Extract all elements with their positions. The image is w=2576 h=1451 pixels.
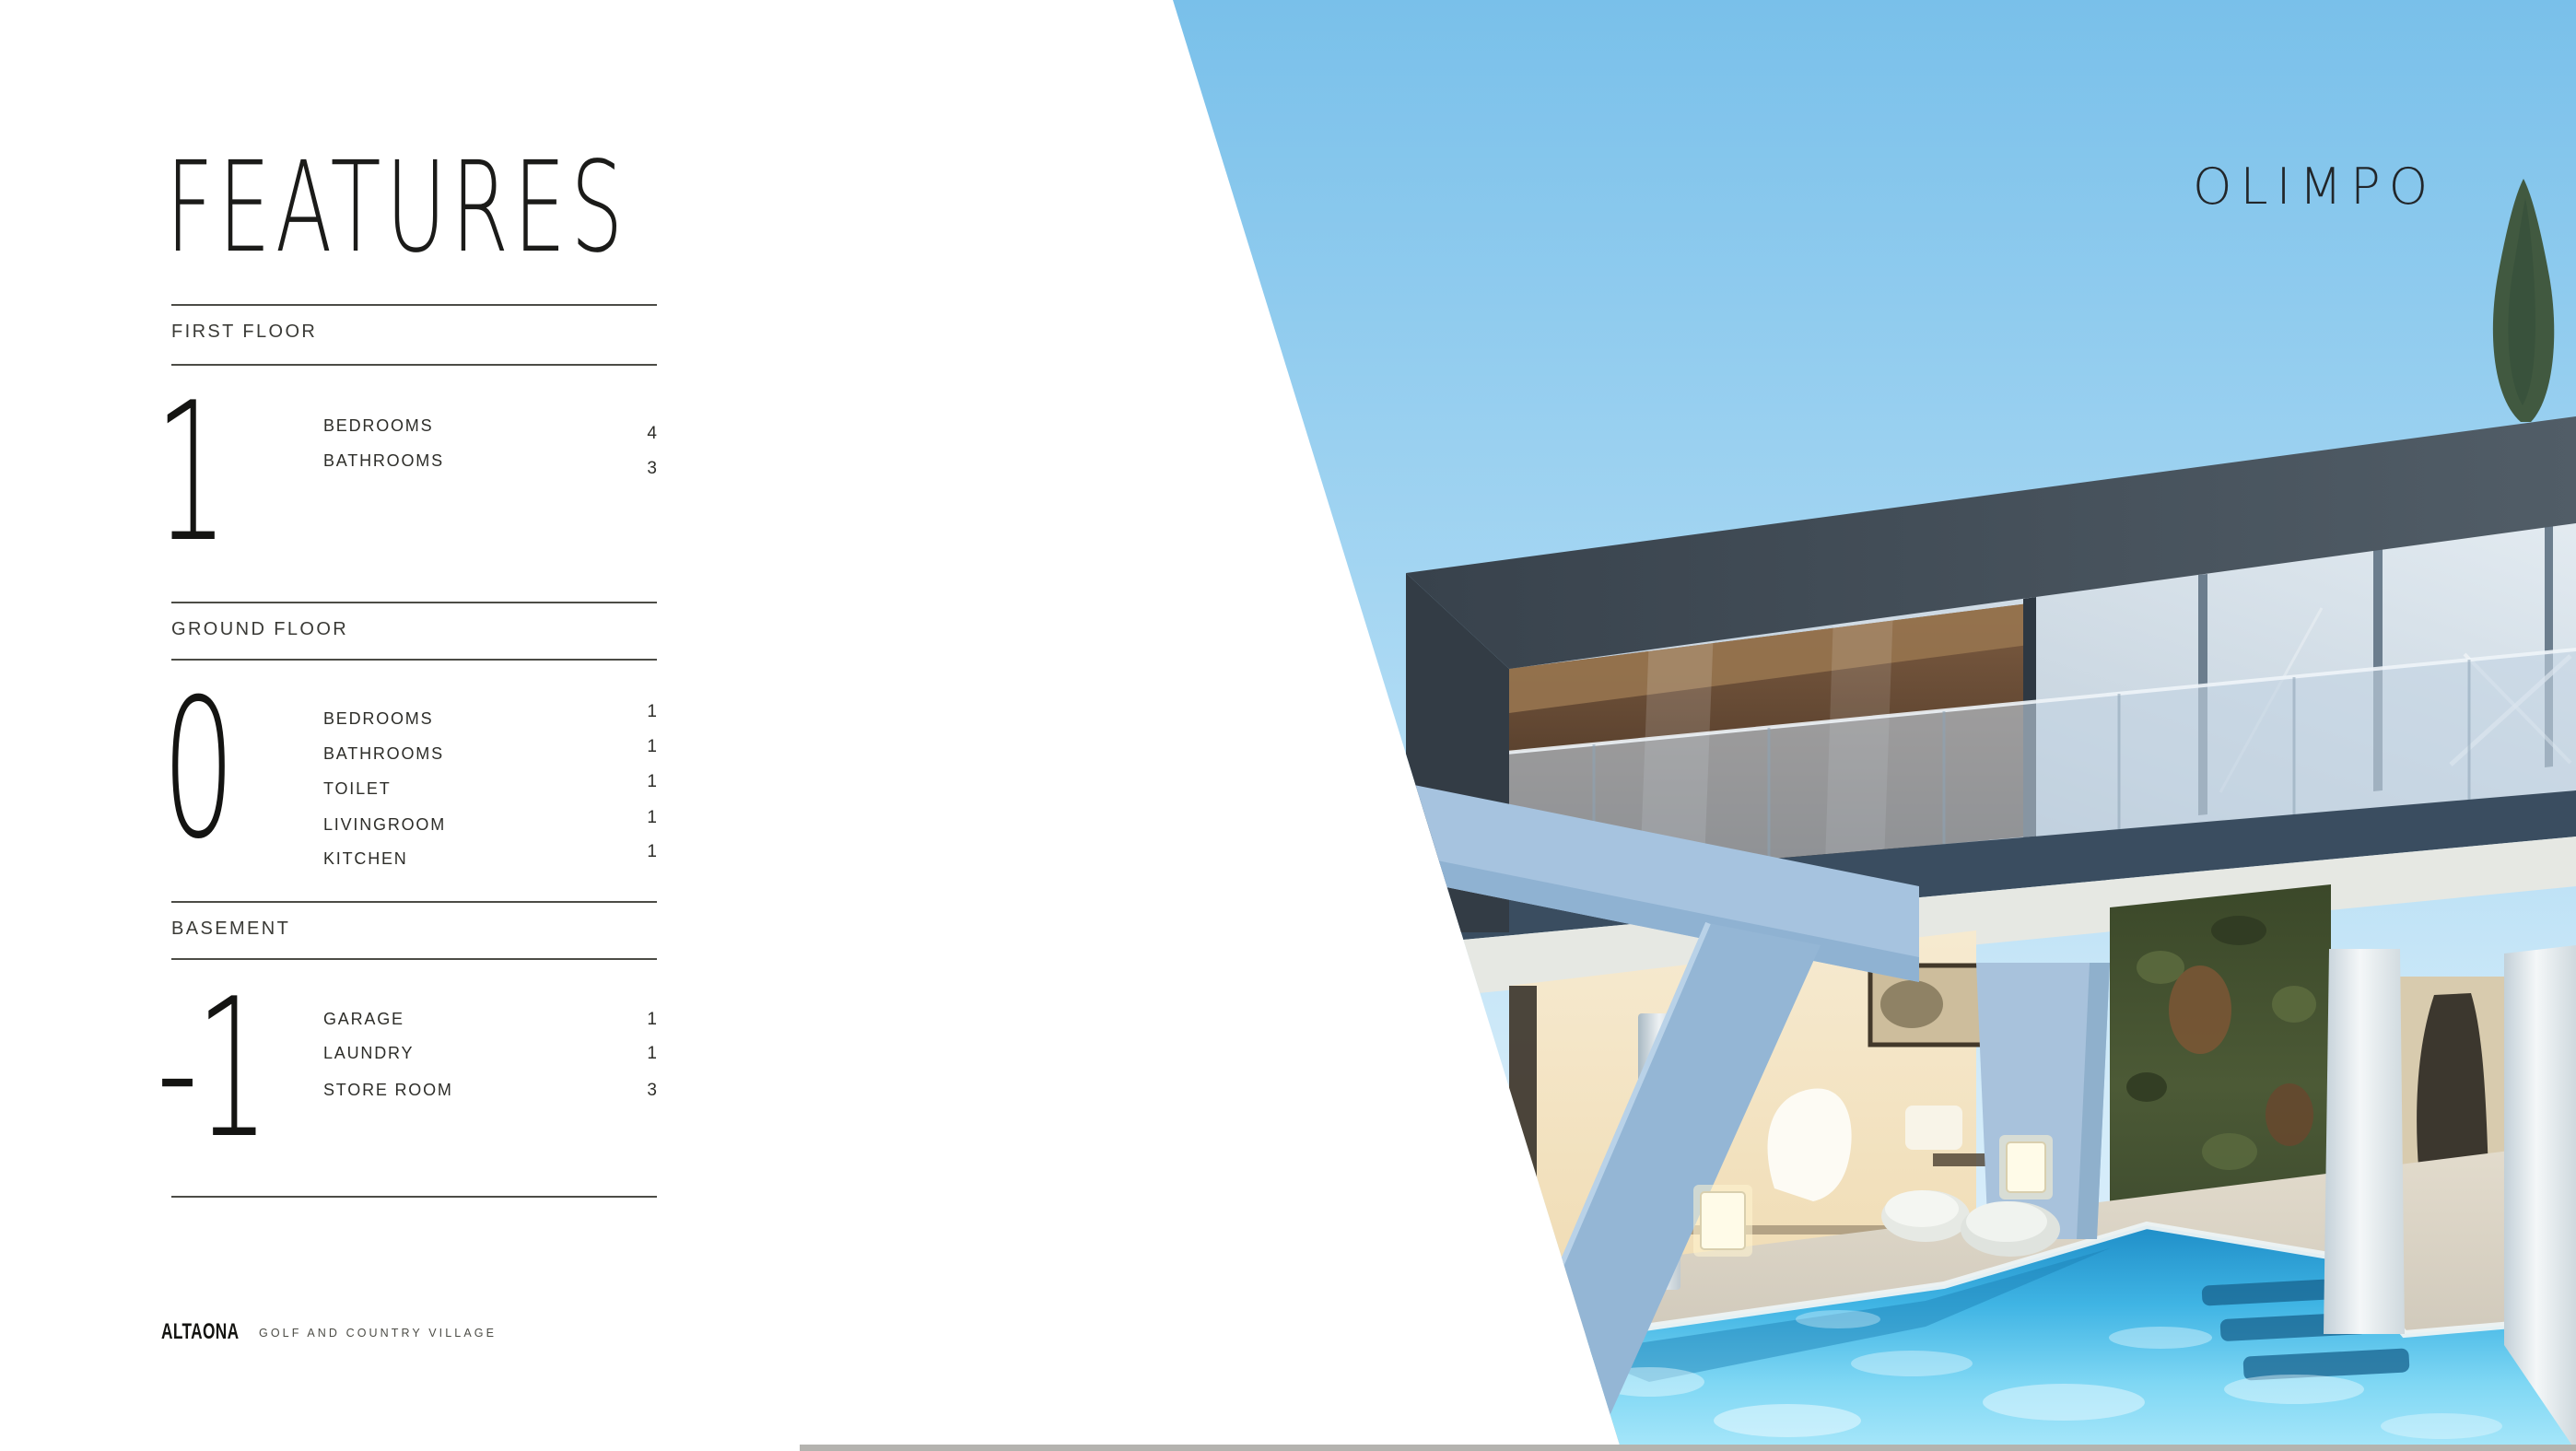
floor-number-basement: -1 — [157, 974, 267, 1165]
room-count: 1 — [565, 808, 657, 828]
room-label: KITCHEN — [323, 849, 408, 869]
floor-number-first-floor: 1 — [155, 378, 226, 569]
room-count: 1 — [565, 737, 657, 757]
page-edge-strip — [800, 1445, 2576, 1451]
room-count: 4 — [565, 424, 657, 444]
divider — [171, 364, 657, 366]
divider — [171, 1196, 657, 1198]
room-count: 1 — [565, 702, 657, 722]
room-count: 3 — [565, 1081, 657, 1101]
room-label: BEDROOMS — [323, 709, 433, 729]
floor-number-ground-floor: 0 — [162, 674, 233, 866]
brand-logo: ALTAONA — [161, 1319, 239, 1345]
section-label-basement: BASEMENT — [171, 919, 290, 940]
divider — [171, 304, 657, 306]
room-count: 3 — [565, 459, 657, 479]
room-count: 1 — [565, 1044, 657, 1064]
room-count: 1 — [565, 842, 657, 862]
section-label-first-floor: FIRST FLOOR — [171, 322, 317, 343]
room-label: GARAGE — [323, 1010, 404, 1029]
room-count: 1 — [565, 1010, 657, 1030]
divider — [171, 659, 657, 661]
section-label-ground-floor: GROUND FLOOR — [171, 619, 348, 640]
room-count: 1 — [565, 772, 657, 792]
brand-tagline: GOLF AND COUNTRY VILLAGE — [259, 1327, 497, 1340]
room-label: BEDROOMS — [323, 416, 433, 436]
room-label: BATHROOMS — [323, 744, 444, 764]
project-name: OLIMPO — [2193, 162, 2436, 212]
room-label: LIVINGROOM — [323, 815, 446, 835]
room-label: TOILET — [323, 779, 391, 799]
room-label: STORE ROOM — [323, 1081, 453, 1100]
villa-photo-illustration — [1004, 0, 2576, 1451]
villa-photo — [1004, 0, 2576, 1451]
brochure-page: FEATURES FIRST FLOOR 1 BEDROOMS 4 BATHRO… — [0, 0, 2576, 1451]
divider — [171, 602, 657, 603]
page-title: FEATURES — [166, 146, 628, 271]
room-label: BATHROOMS — [323, 451, 444, 471]
room-label: LAUNDRY — [323, 1044, 414, 1063]
divider — [171, 901, 657, 903]
